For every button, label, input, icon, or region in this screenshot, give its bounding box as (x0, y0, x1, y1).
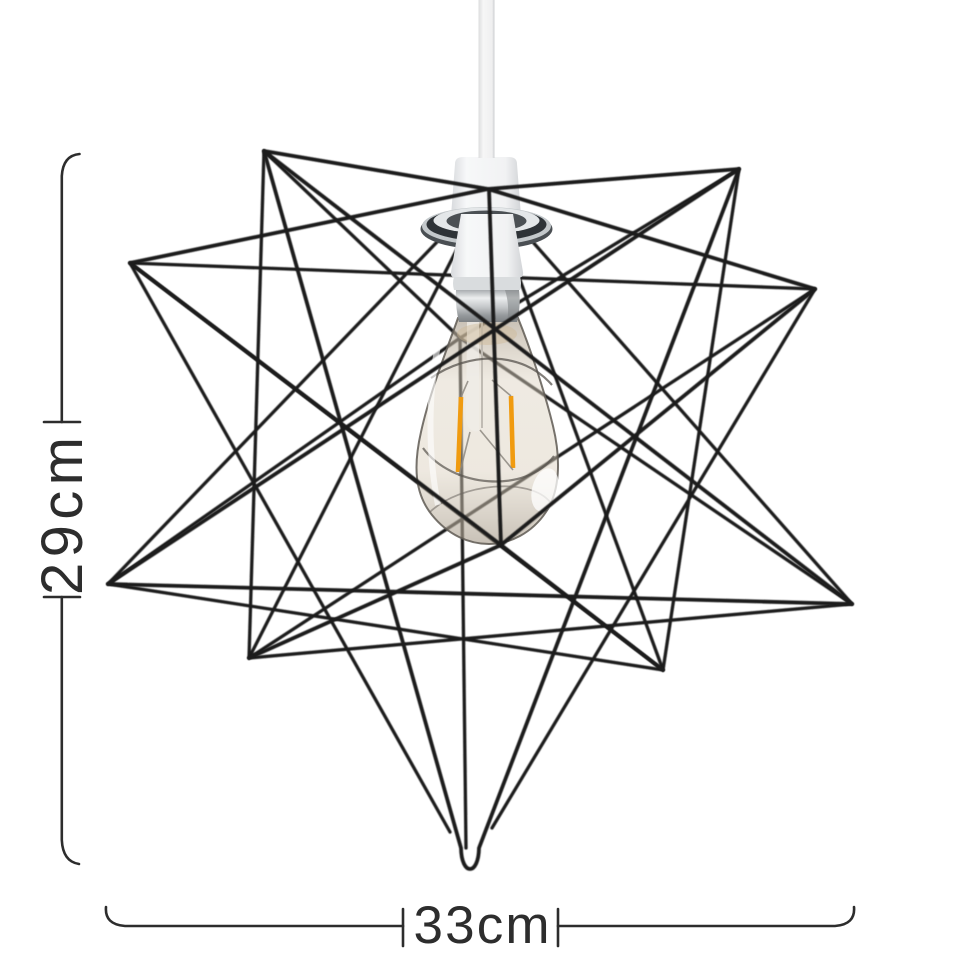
svg-text:33cm: 33cm (414, 896, 550, 955)
svg-text:29cm: 29cm (30, 437, 95, 595)
